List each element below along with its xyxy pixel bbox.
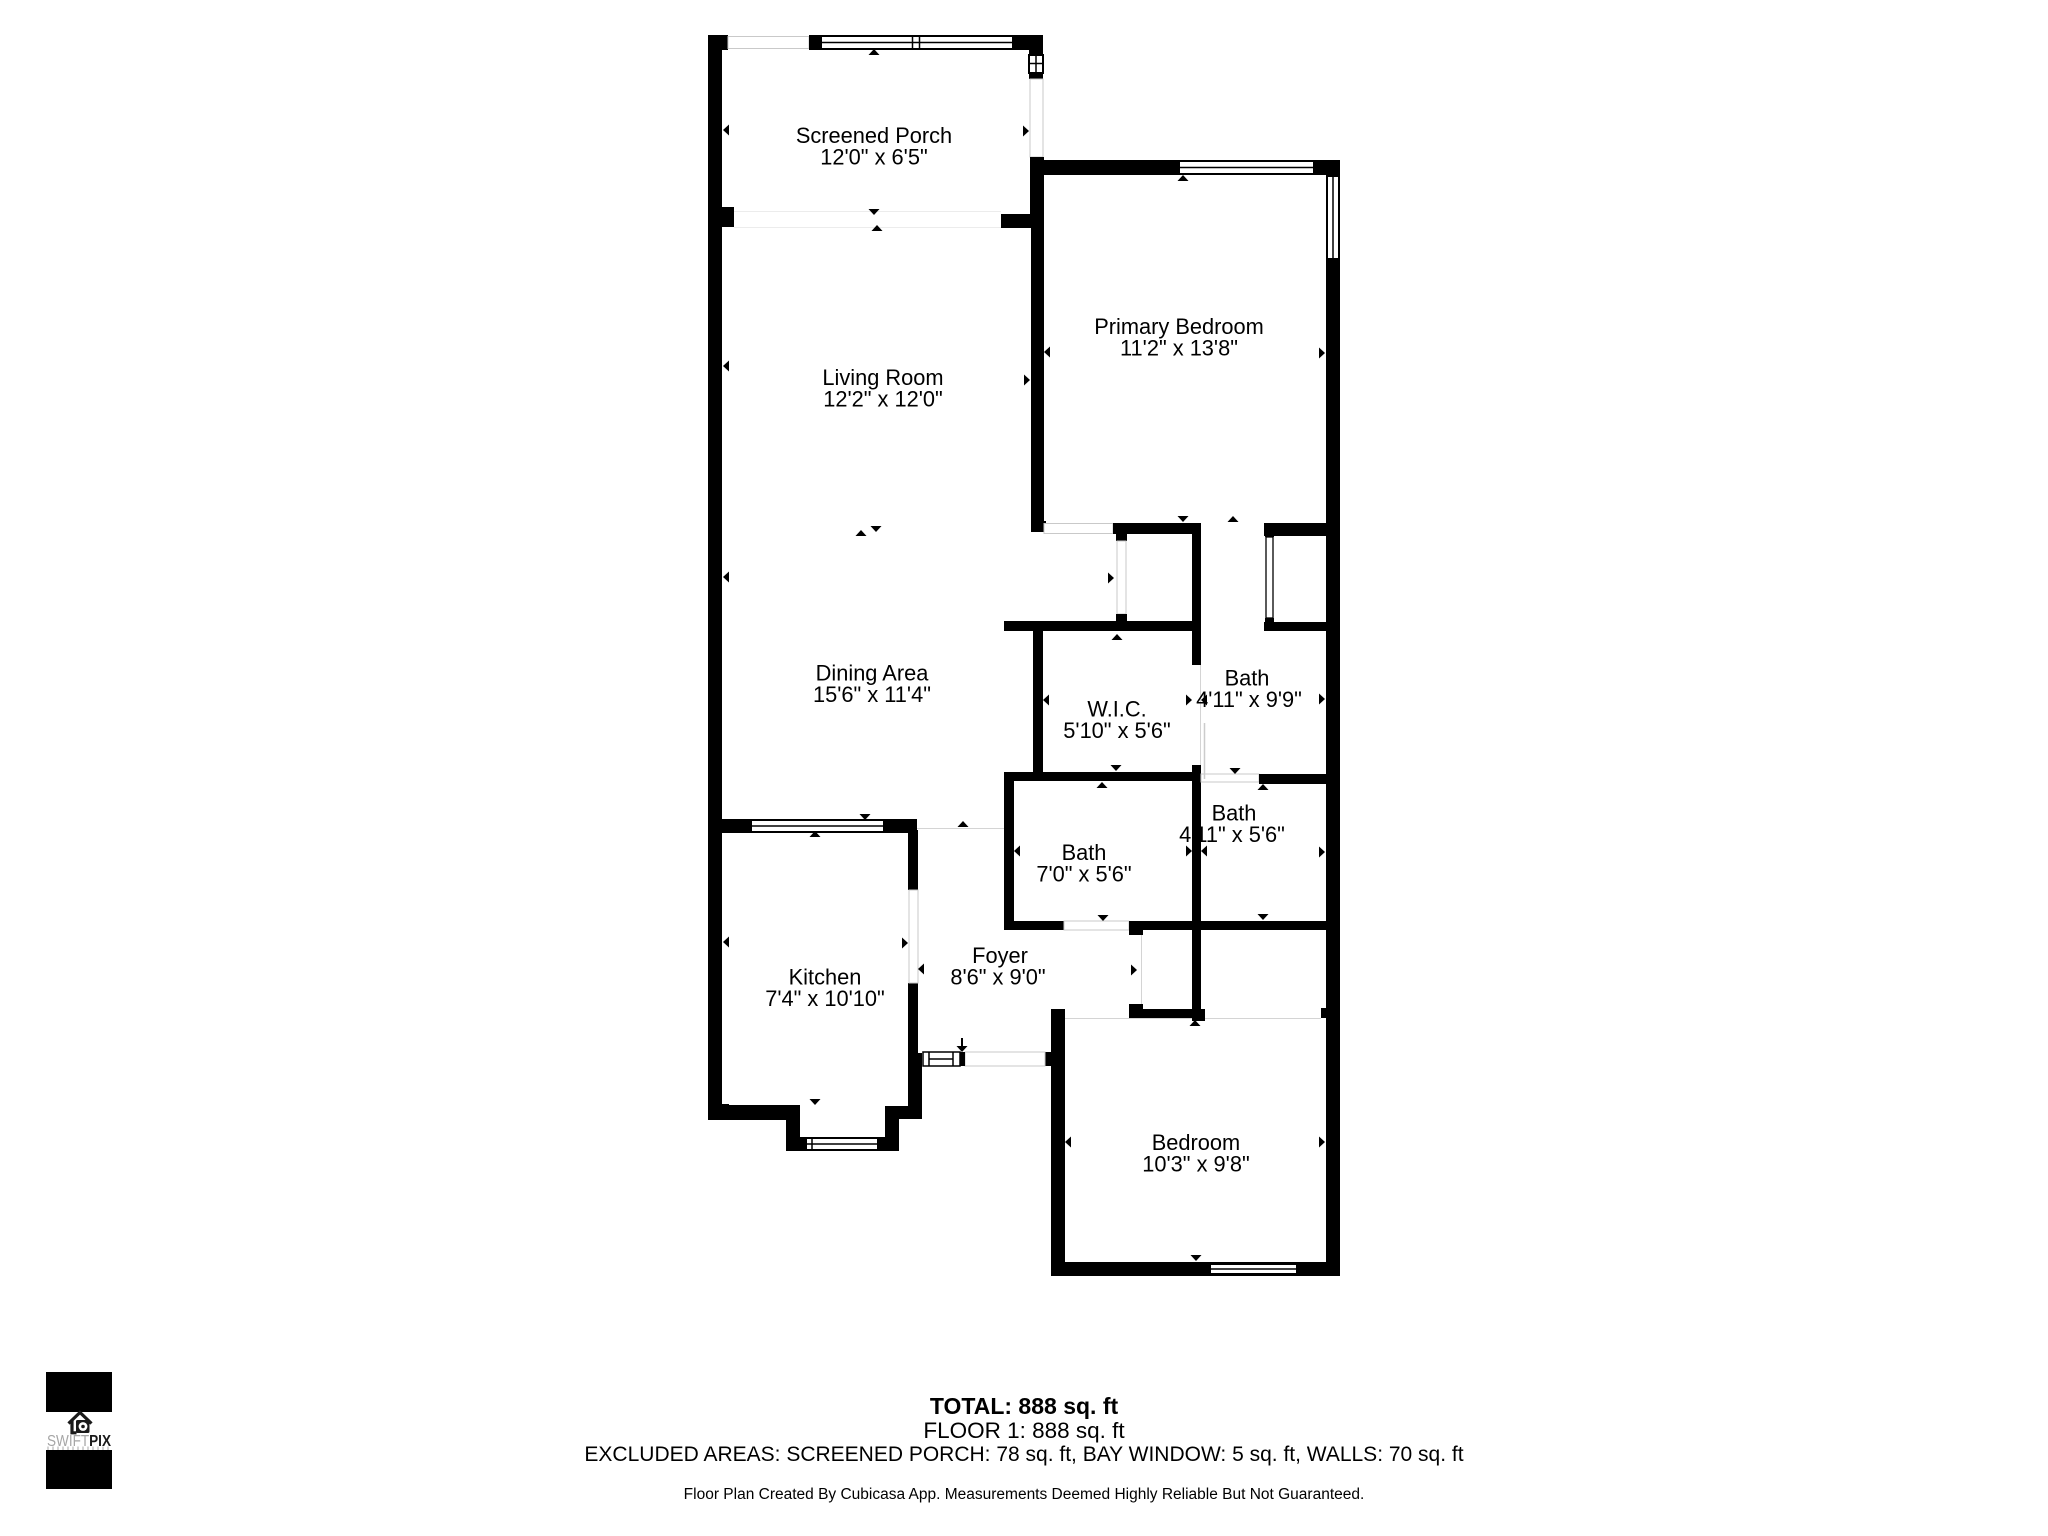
svg-text:FLOOR 1: 888 sq. ft: FLOOR 1: 888 sq. ft [923,1418,1125,1443]
svg-text:Floor Plan Created By Cubicasa: Floor Plan Created By Cubicasa App. Meas… [684,1486,1365,1503]
svg-text:EXCLUDED AREAS: SCREENED PORCH: EXCLUDED AREAS: SCREENED PORCH: 78 sq. f… [584,1443,1463,1466]
svg-text:4'11" x 5'6": 4'11" x 5'6" [1179,822,1285,847]
svg-text:4'11" x 9'9": 4'11" x 9'9" [1196,687,1302,712]
svg-text:7'0" x 5'6": 7'0" x 5'6" [1036,862,1131,887]
svg-text:TOTAL: 888 sq. ft: TOTAL: 888 sq. ft [930,1393,1119,1419]
svg-text:7'4" x 10'10": 7'4" x 10'10" [765,986,885,1011]
svg-text:11'2" x 13'8": 11'2" x 13'8" [1120,336,1238,361]
svg-text:10'3" x 9'8": 10'3" x 9'8" [1142,1152,1249,1177]
svg-text:15'6" x 11'4": 15'6" x 11'4" [813,682,931,707]
svg-text:8'6" x 9'0": 8'6" x 9'0" [950,965,1045,990]
svg-text:SWIFTPIX: SWIFTPIX [47,1433,111,1450]
svg-text:12'2" x 12'0": 12'2" x 12'0" [823,387,943,412]
svg-text:12'0" x 6'5": 12'0" x 6'5" [820,145,927,170]
svg-text:5'10" x 5'6": 5'10" x 5'6" [1063,718,1170,743]
